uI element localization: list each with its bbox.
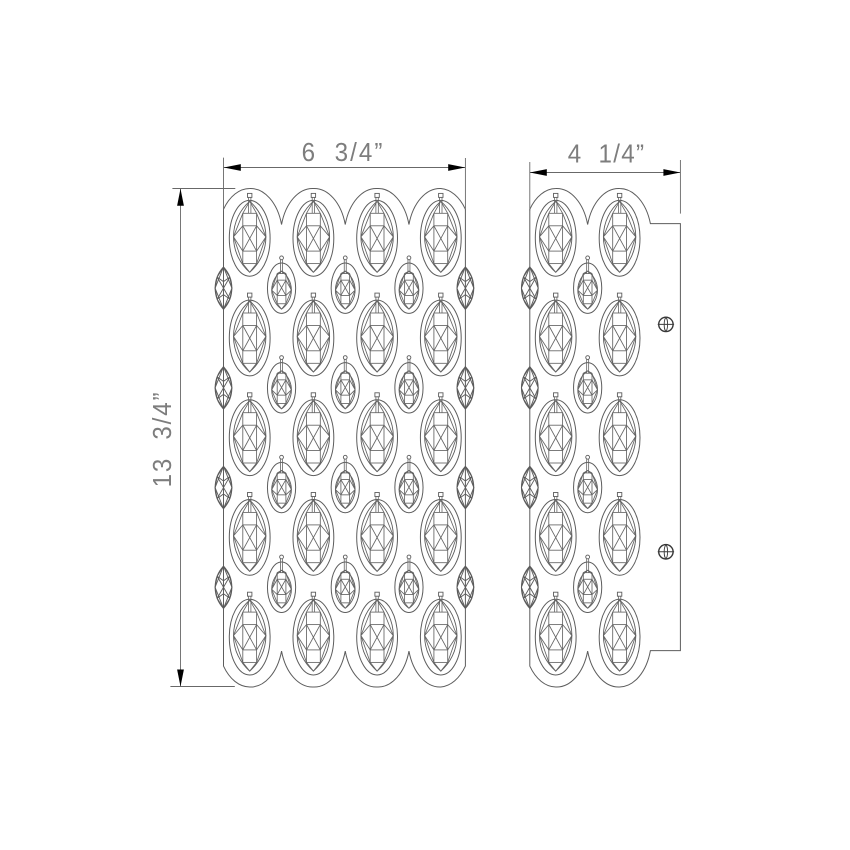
svg-text:6 3/4”: 6 3/4” [302, 138, 385, 167]
svg-text:13 3/4”: 13 3/4” [148, 391, 177, 488]
svg-text:4 1/4”: 4 1/4” [568, 140, 646, 169]
